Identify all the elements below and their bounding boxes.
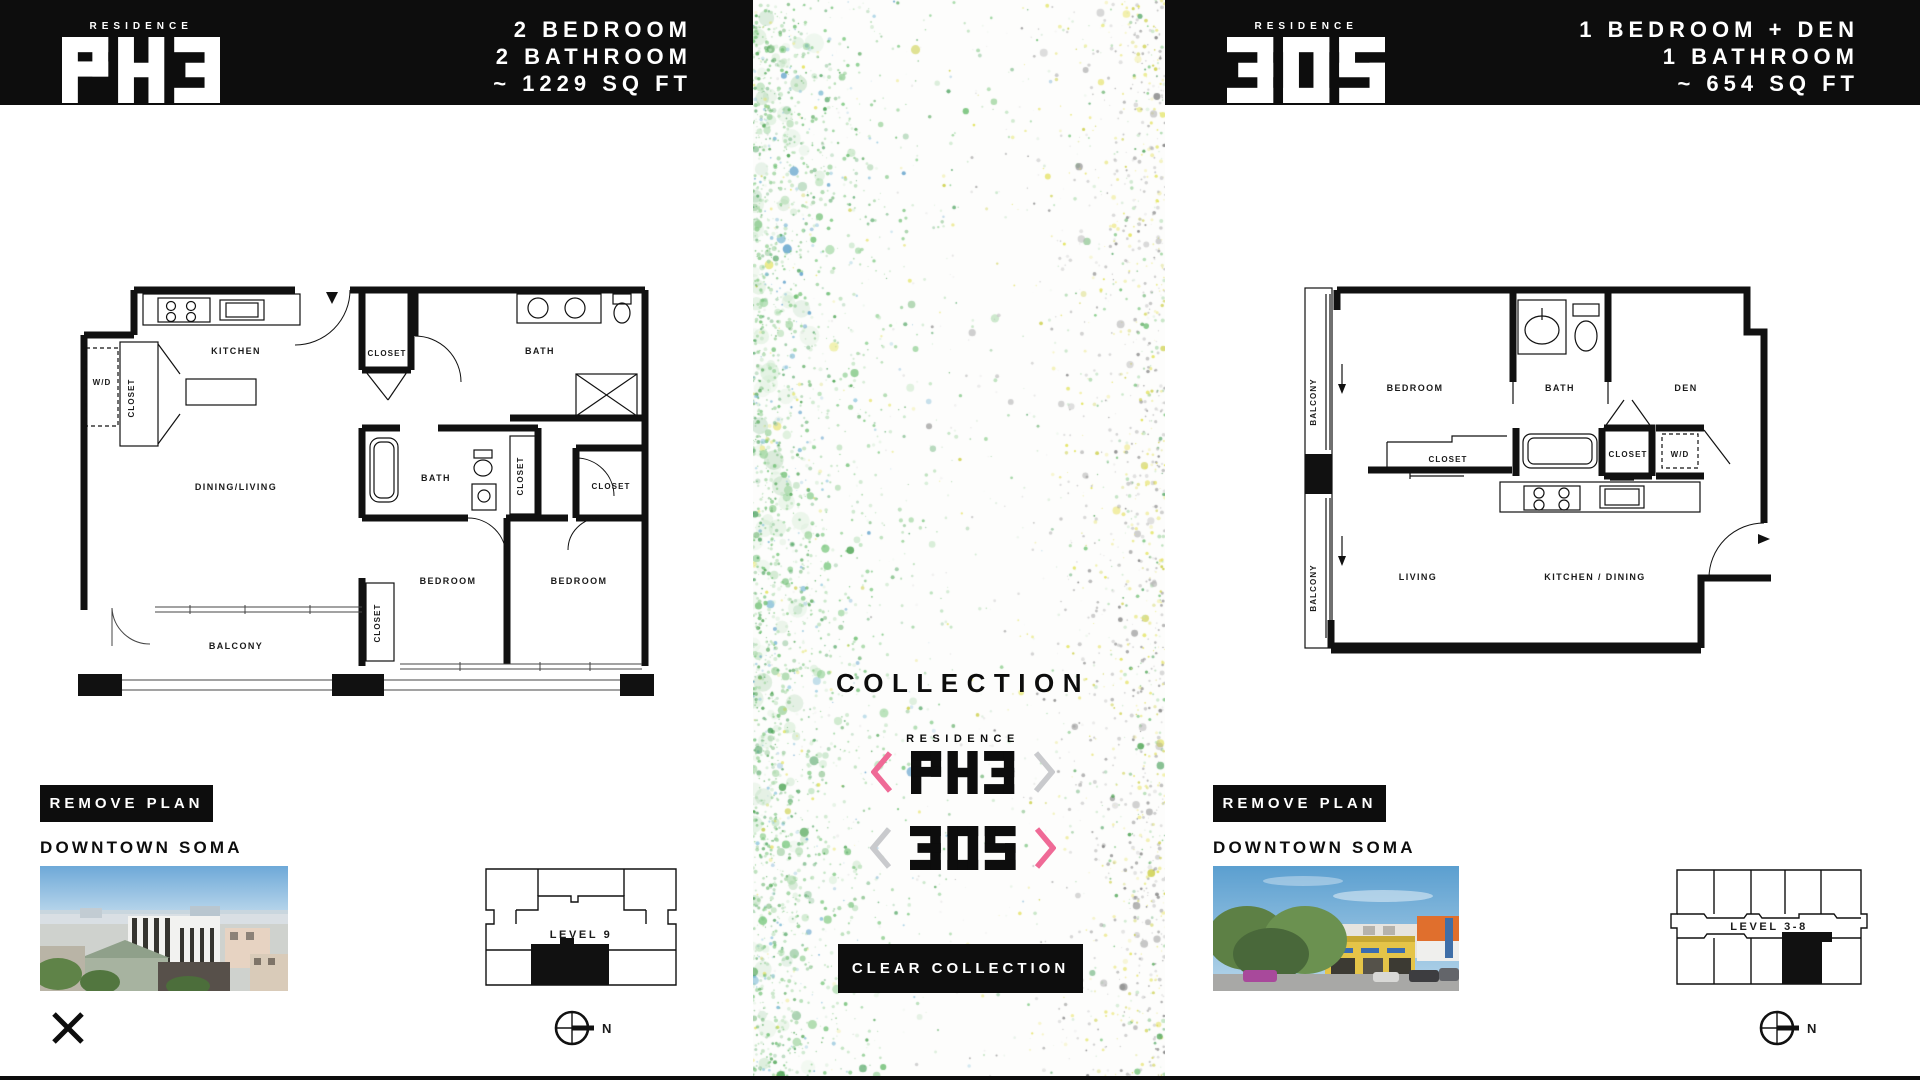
collection-title: COLLECTION: [836, 668, 1090, 699]
compass-icon: N: [1755, 1006, 1827, 1052]
remove-plan-button[interactable]: REMOVE PLAN: [1213, 785, 1386, 822]
room-label: BALCONY: [1309, 378, 1318, 425]
spec-bedrooms: 2 BEDROOM: [493, 16, 692, 43]
next-arrow-icon[interactable]: [1033, 749, 1055, 795]
residence-label: RESIDENCE: [90, 21, 193, 32]
unit-specs: 1 BEDROOM + DEN 1 BATHROOM ~ 654 SQ FT: [1579, 16, 1859, 97]
room-label: BATH: [421, 473, 451, 483]
residence-ph3-logo: RESIDENCE: [62, 21, 220, 103]
room-label: KITCHEN: [211, 346, 261, 356]
header-305: RESIDENCE 1 BEDROOM + DEN 1 BATHROOM ~ 6…: [1165, 0, 1920, 105]
room-label: CLOSET: [127, 378, 136, 417]
spec-bedrooms: 1 BEDROOM + DEN: [1579, 16, 1859, 43]
neighborhood-label: DOWNTOWN SOMA: [1213, 838, 1416, 858]
residence-label: RESIDENCE: [1255, 21, 1358, 32]
residence-label: RESIDENCE: [906, 733, 1020, 745]
spec-area: ~ 1229 SQ FT: [493, 70, 692, 97]
room-label: BEDROOM: [551, 576, 608, 586]
next-arrow-icon[interactable]: [1034, 825, 1056, 871]
collection-unit-ph3[interactable]: [911, 751, 1014, 794]
room-label: BALCONY: [209, 641, 263, 651]
room-label: CLOSET: [516, 456, 525, 495]
room-label: LIVING: [1399, 572, 1437, 582]
prev-arrow-icon[interactable]: [870, 825, 892, 871]
unit-name-logo: [62, 37, 220, 103]
unit-specs: 2 BEDROOM 2 BATHROOM ~ 1229 SQ FT: [493, 16, 692, 97]
room-label: CLOSET: [591, 482, 630, 491]
spray-paint-texture: [753, 0, 1165, 1076]
compass-icon: N: [550, 1006, 622, 1052]
collection-item-305: [870, 825, 1056, 871]
neighborhood-photo: [1213, 866, 1459, 991]
room-label: BALCONY: [1309, 564, 1318, 611]
keyplan-level-9: LEVEL 9: [476, 866, 686, 988]
room-label: BATH: [1545, 383, 1575, 393]
close-icon[interactable]: [50, 1010, 86, 1046]
neighborhood-label: DOWNTOWN SOMA: [40, 838, 243, 858]
level-label: LEVEL 9: [550, 929, 613, 941]
room-label: BEDROOM: [420, 576, 477, 586]
floorplan-comparison-page: RESIDENCE 2 BEDROOM 2 BATHROOM ~ 1229 SQ…: [0, 0, 1920, 1080]
room-label: CLOSET: [367, 349, 406, 358]
panel-residence-ph3: RESIDENCE 2 BEDROOM 2 BATHROOM ~ 1229 SQ…: [0, 0, 753, 1076]
collection-unit-305[interactable]: [910, 826, 1016, 870]
room-label: BATH: [525, 346, 555, 356]
prev-arrow-icon[interactable]: [871, 749, 893, 795]
collection-column: COLLECTION RESIDENCE: [753, 0, 1165, 1076]
room-label: DEN: [1674, 383, 1697, 393]
panel-residence-305: RESIDENCE 1 BEDROOM + DEN 1 BATHROOM ~ 6…: [1165, 0, 1920, 1076]
room-label: CLOSET: [373, 603, 382, 642]
room-label: KITCHEN / DINING: [1544, 572, 1645, 582]
residence-305-logo: RESIDENCE: [1227, 21, 1385, 103]
room-label: DINING/LIVING: [195, 482, 277, 492]
remove-plan-button[interactable]: REMOVE PLAN: [40, 785, 213, 822]
spec-bathrooms: 1 BATHROOM: [1579, 43, 1859, 70]
room-label: CLOSET: [1608, 450, 1647, 459]
keyplan-level-3-8: LEVEL 3-8: [1669, 866, 1869, 988]
room-label: W/D: [93, 378, 112, 387]
room-label: W/D: [1671, 450, 1690, 459]
north-label: N: [602, 1021, 612, 1036]
spec-area: ~ 654 SQ FT: [1579, 70, 1859, 97]
bottom-rule: [0, 1076, 1920, 1080]
collection-widget: COLLECTION RESIDENCE: [753, 668, 1165, 871]
unit-name-logo: [1227, 37, 1385, 103]
header-ph3: RESIDENCE 2 BEDROOM 2 BATHROOM ~ 1229 SQ…: [0, 0, 753, 105]
room-label: BEDROOM: [1387, 383, 1444, 393]
floorplan-ph3: KITCHEN W/D CLOSET CLOSET BATH DINING/LI…: [70, 278, 665, 700]
neighborhood-photo: [40, 866, 288, 991]
north-label: N: [1807, 1021, 1817, 1036]
collection-item-ph3: RESIDENCE: [871, 733, 1054, 795]
room-label: CLOSET: [1428, 455, 1467, 464]
spec-bathrooms: 2 BATHROOM: [493, 43, 692, 70]
clear-collection-button[interactable]: CLEAR COLLECTION: [838, 944, 1083, 993]
floorplan-305: BALCONY BALCONY BEDROOM BATH DEN CLOSET …: [1302, 280, 1787, 675]
level-label: LEVEL 3-8: [1730, 921, 1808, 933]
